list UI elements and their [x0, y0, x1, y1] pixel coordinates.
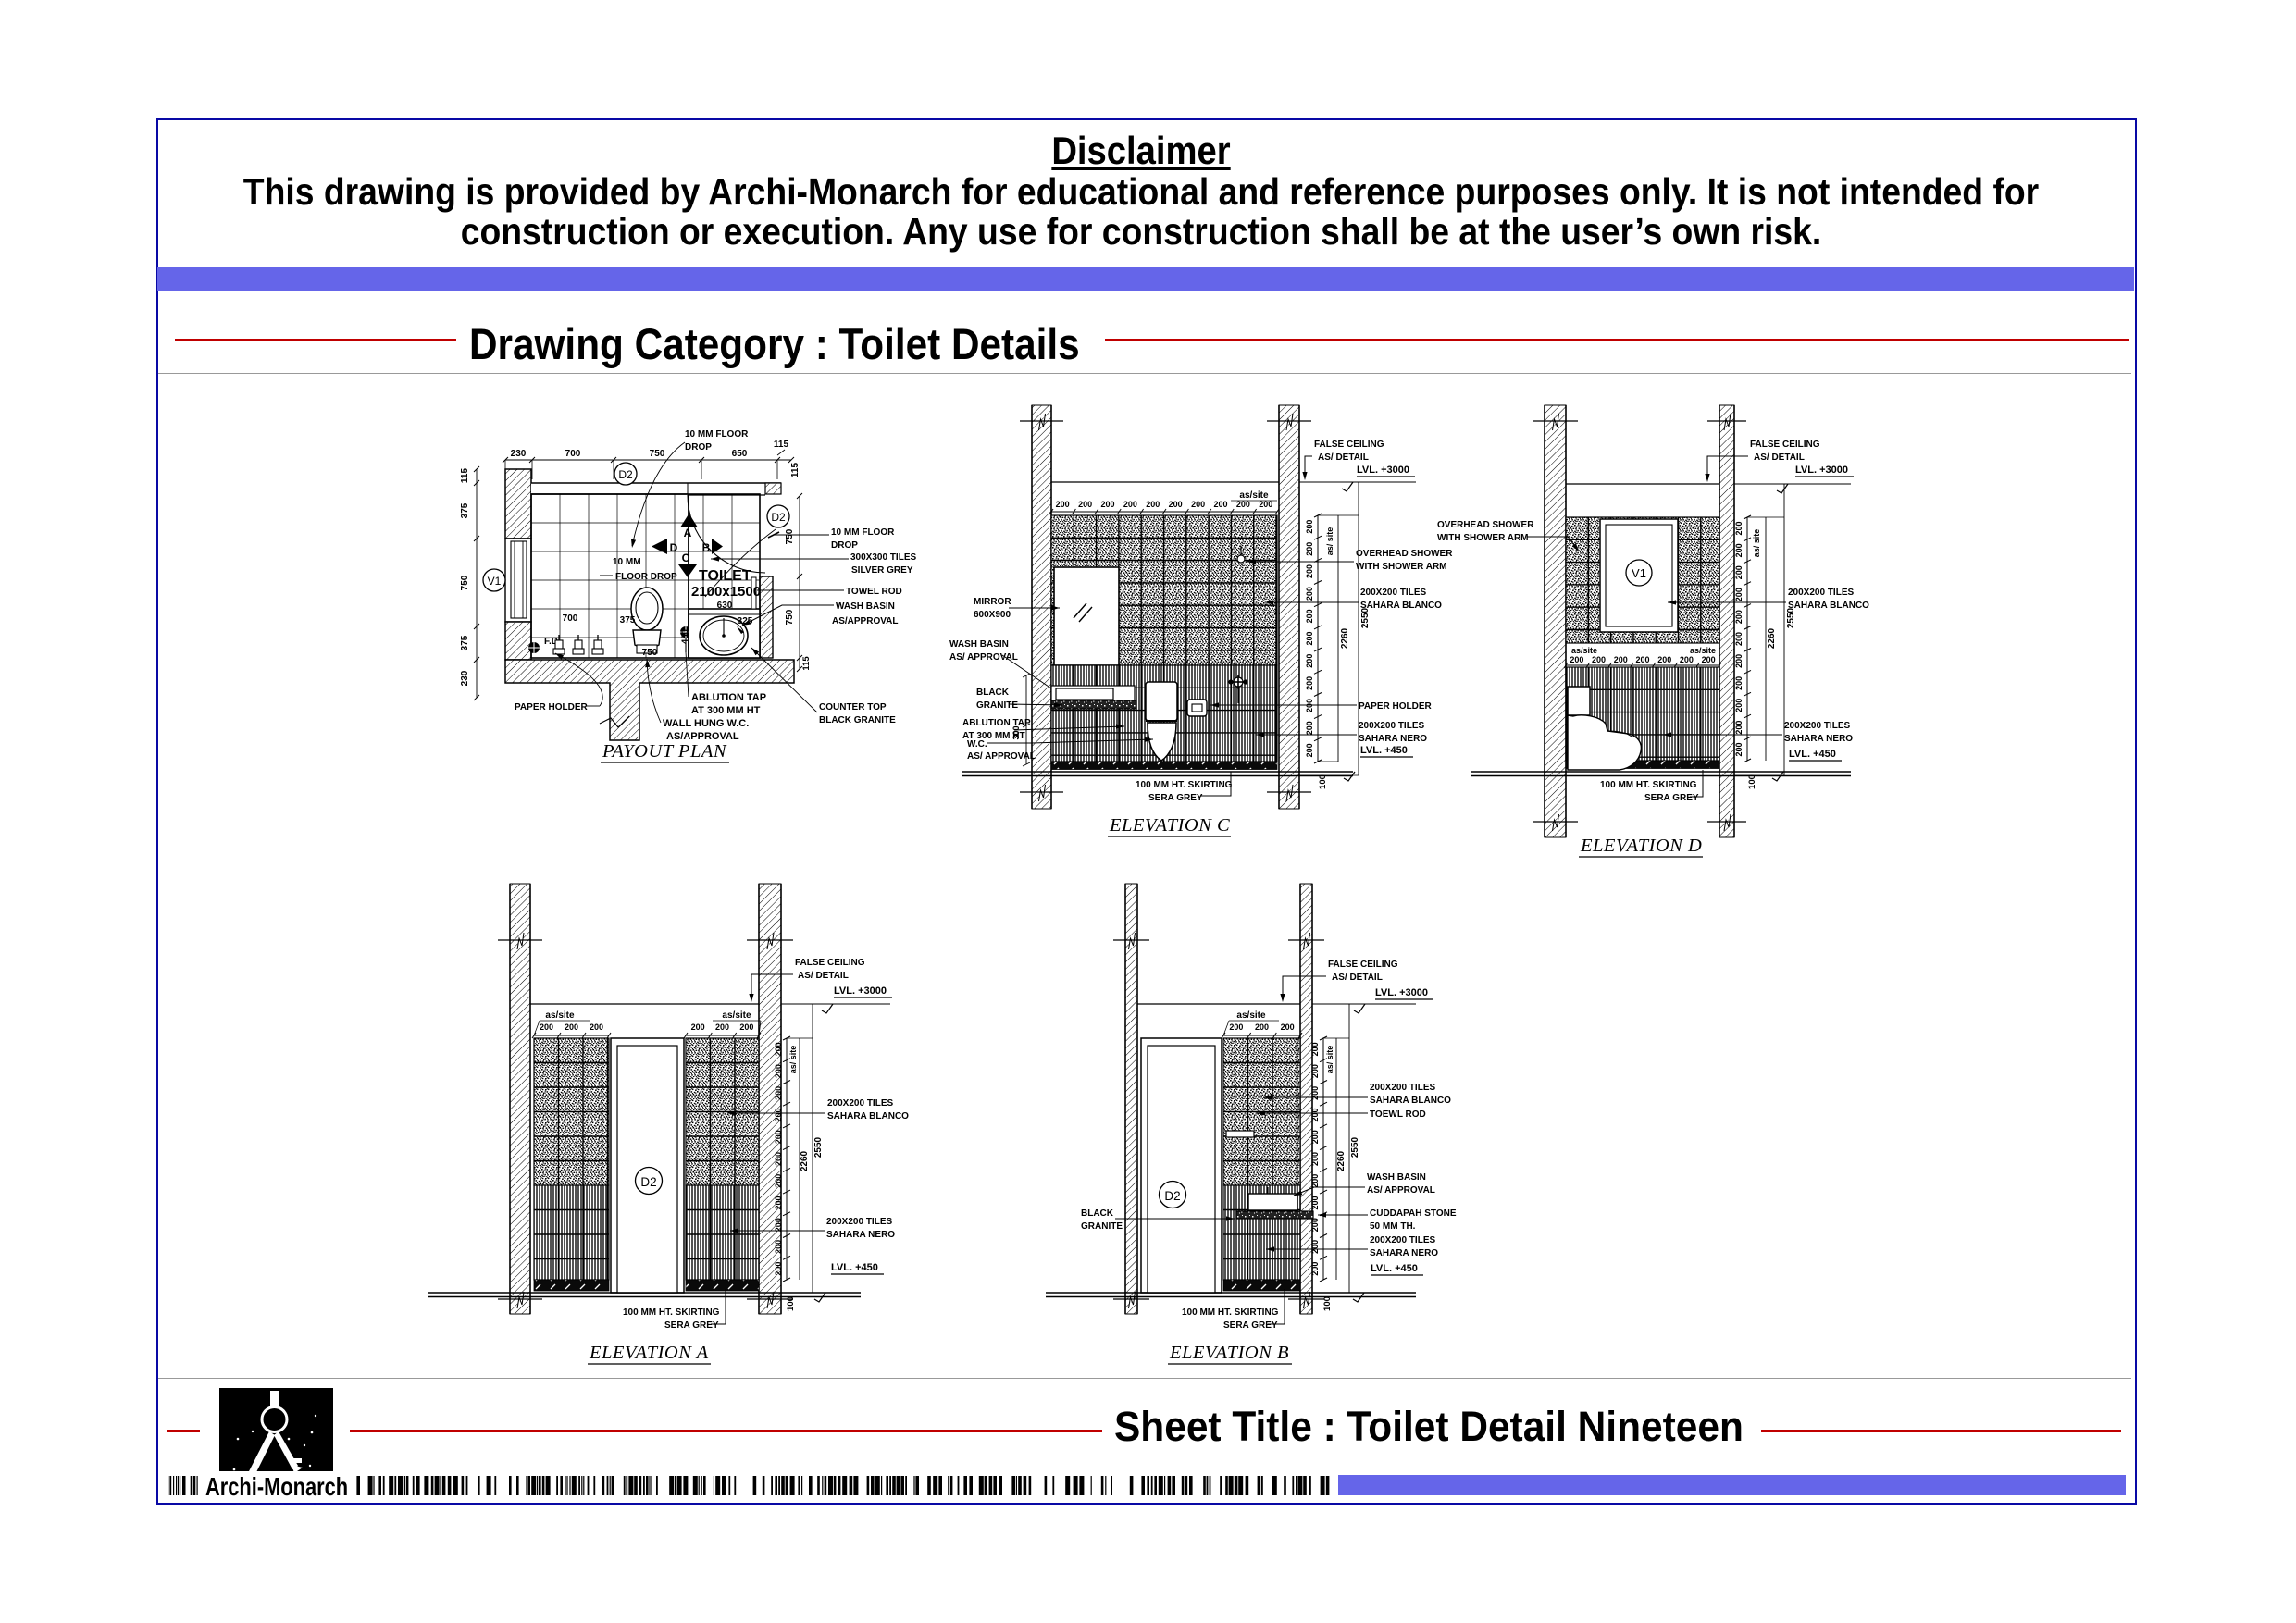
- svg-text:SERA GREY: SERA GREY: [1148, 793, 1203, 803]
- svg-text:100: 100: [1322, 1296, 1333, 1311]
- svg-text:100 MM HT. SKIRTING: 100 MM HT. SKIRTING: [1600, 780, 1697, 790]
- svg-text:600X900: 600X900: [974, 610, 1011, 620]
- svg-text:200: 200: [1592, 655, 1606, 664]
- svg-text:100 MM HT. SKIRTING: 100 MM HT. SKIRTING: [623, 1307, 720, 1318]
- svg-text:2550: 2550: [813, 1136, 824, 1158]
- svg-text:OVERHEAD SHOWER: OVERHEAD SHOWER: [1437, 520, 1534, 530]
- svg-text:200: 200: [1734, 743, 1744, 757]
- svg-text:200: 200: [1191, 500, 1205, 509]
- svg-text:200: 200: [1305, 609, 1314, 623]
- svg-text:200: 200: [1310, 1152, 1320, 1166]
- svg-text:10 MM FLOOR: 10 MM FLOOR: [831, 527, 895, 538]
- svg-text:2100x1500: 2100x1500: [691, 584, 761, 600]
- svg-text:as/site: as/site: [1690, 646, 1716, 655]
- svg-text:700: 700: [565, 449, 581, 459]
- svg-text:200: 200: [1734, 588, 1744, 601]
- svg-text:200: 200: [1570, 655, 1583, 664]
- svg-text:115: 115: [774, 440, 789, 450]
- svg-text:as/site: as/site: [1236, 1010, 1266, 1021]
- svg-text:WASH BASIN: WASH BASIN: [836, 601, 895, 612]
- svg-text:200: 200: [1310, 1042, 1320, 1056]
- svg-text:2260: 2260: [1340, 627, 1350, 649]
- svg-text:WITH SHOWER ARM: WITH SHOWER ARM: [1356, 562, 1447, 572]
- svg-text:W.C.: W.C.: [967, 739, 987, 750]
- svg-text:200: 200: [1657, 655, 1671, 664]
- svg-text:200: 200: [1305, 631, 1314, 645]
- svg-text:SAHARA BLANCO: SAHARA BLANCO: [1788, 601, 1869, 611]
- svg-text:LVL. +450: LVL. +450: [1789, 749, 1836, 760]
- svg-text:375: 375: [460, 502, 470, 518]
- svg-text:200: 200: [774, 1174, 783, 1188]
- svg-text:2550: 2550: [1350, 1136, 1360, 1158]
- svg-text:200: 200: [1310, 1086, 1320, 1100]
- svg-text:2260: 2260: [1336, 1150, 1347, 1171]
- svg-text:D2: D2: [640, 1175, 656, 1189]
- svg-text:630: 630: [717, 601, 733, 611]
- svg-text:FALSE CEILING: FALSE CEILING: [1314, 440, 1384, 450]
- svg-text:10 MM FLOOR: 10 MM FLOOR: [685, 429, 749, 440]
- svg-text:100: 100: [1747, 774, 1757, 789]
- svg-text:D: D: [670, 541, 678, 554]
- svg-text:2260: 2260: [1767, 627, 1777, 649]
- svg-text:200: 200: [565, 1022, 578, 1032]
- svg-text:200: 200: [691, 1022, 705, 1032]
- svg-text:ELEVATION D: ELEVATION D: [1580, 836, 1702, 856]
- svg-text:200: 200: [1680, 655, 1694, 664]
- svg-text:200: 200: [1734, 543, 1744, 557]
- svg-text:FLOOR DROP: FLOOR DROP: [615, 572, 677, 582]
- svg-text:200: 200: [774, 1130, 783, 1144]
- svg-text:C: C: [682, 551, 690, 564]
- svg-text:375: 375: [620, 615, 636, 626]
- svg-text:200: 200: [1259, 500, 1272, 509]
- svg-text:200: 200: [1100, 500, 1114, 509]
- svg-text:200: 200: [1635, 655, 1649, 664]
- svg-text:100: 100: [1318, 774, 1328, 789]
- svg-text:10 MM: 10 MM: [613, 557, 641, 567]
- svg-text:200X200 TILES: 200X200 TILES: [1370, 1235, 1435, 1245]
- svg-text:200: 200: [1734, 632, 1744, 646]
- svg-text:BLACK: BLACK: [1081, 1208, 1114, 1219]
- svg-text:200: 200: [1305, 654, 1314, 668]
- svg-text:200: 200: [1734, 521, 1744, 535]
- svg-text:PAPER HOLDER: PAPER HOLDER: [515, 702, 588, 712]
- svg-text:AS/ DETAIL: AS/ DETAIL: [1332, 973, 1383, 983]
- svg-text:AT 300 MM HT: AT 300 MM HT: [691, 705, 761, 716]
- svg-text:V1: V1: [1632, 566, 1646, 580]
- svg-text:SERA GREY: SERA GREY: [1644, 793, 1699, 803]
- svg-text:100: 100: [786, 1296, 796, 1311]
- svg-text:SILVER GREY: SILVER GREY: [851, 565, 913, 576]
- svg-text:SERA GREY: SERA GREY: [664, 1320, 719, 1331]
- svg-text:as/ site: as/ site: [1752, 529, 1761, 558]
- svg-text:200: 200: [1056, 500, 1070, 509]
- svg-text:200: 200: [774, 1240, 783, 1254]
- svg-text:PAYOUT PLAN: PAYOUT PLAN: [602, 741, 727, 762]
- svg-text:200: 200: [1310, 1218, 1320, 1232]
- svg-text:WITH SHOWER ARM: WITH SHOWER ARM: [1437, 533, 1529, 543]
- svg-text:AS/ DETAIL: AS/ DETAIL: [1754, 452, 1805, 463]
- svg-text:AS/ DETAIL: AS/ DETAIL: [798, 971, 849, 981]
- svg-text:BLACK: BLACK: [976, 688, 1010, 698]
- svg-text:200: 200: [1310, 1262, 1320, 1276]
- svg-text:2260: 2260: [800, 1150, 810, 1171]
- svg-text:SAHARA BLANCO: SAHARA BLANCO: [1360, 601, 1442, 611]
- svg-text:200: 200: [774, 1152, 783, 1166]
- svg-text:200X200 TILES: 200X200 TILES: [826, 1217, 892, 1227]
- svg-text:200: 200: [1614, 655, 1628, 664]
- svg-text:750: 750: [785, 609, 795, 625]
- svg-text:200: 200: [1078, 500, 1092, 509]
- svg-text:MIRROR: MIRROR: [974, 597, 1011, 607]
- svg-text:200: 200: [1229, 1022, 1243, 1032]
- svg-text:200: 200: [1123, 500, 1137, 509]
- svg-text:D2: D2: [771, 511, 786, 524]
- svg-text:200: 200: [1213, 500, 1227, 509]
- svg-text:DROP: DROP: [831, 540, 858, 551]
- svg-text:300: 300: [1011, 725, 1021, 739]
- svg-text:230: 230: [511, 449, 527, 459]
- svg-text:100 MM HT. SKIRTING: 100 MM HT. SKIRTING: [1136, 780, 1233, 790]
- svg-text:230: 230: [460, 670, 470, 686]
- svg-text:CUDDAPAH STONE: CUDDAPAH STONE: [1370, 1208, 1457, 1219]
- svg-text:200: 200: [1169, 500, 1183, 509]
- svg-text:200: 200: [715, 1022, 729, 1032]
- svg-text:375: 375: [460, 635, 470, 650]
- svg-text:200: 200: [774, 1196, 783, 1209]
- svg-text:AS/ APPROVAL: AS/ APPROVAL: [967, 751, 1036, 762]
- svg-text:WASH BASIN: WASH BASIN: [1367, 1172, 1426, 1183]
- svg-text:200: 200: [1255, 1022, 1269, 1032]
- svg-text:ELEVATION B: ELEVATION B: [1169, 1343, 1289, 1363]
- svg-text:TOWEL ROD: TOWEL ROD: [846, 587, 902, 597]
- svg-text:GRANITE: GRANITE: [976, 700, 1018, 711]
- svg-text:115: 115: [460, 467, 470, 483]
- svg-text:SAHARA NERO: SAHARA NERO: [1784, 734, 1853, 744]
- svg-text:as/site: as/site: [1571, 646, 1597, 655]
- svg-text:700: 700: [563, 613, 578, 624]
- svg-text:TOEWL ROD: TOEWL ROD: [1370, 1109, 1426, 1120]
- svg-text:200: 200: [1310, 1064, 1320, 1078]
- svg-text:200: 200: [1305, 542, 1314, 556]
- svg-text:200: 200: [1734, 676, 1744, 690]
- svg-text:200: 200: [590, 1022, 603, 1032]
- svg-text:WASH BASIN: WASH BASIN: [949, 639, 1009, 650]
- svg-text:200: 200: [1734, 699, 1744, 712]
- svg-text:115: 115: [801, 656, 812, 671]
- svg-text:200: 200: [774, 1042, 783, 1056]
- svg-text:SAHARA NERO: SAHARA NERO: [1359, 734, 1427, 744]
- svg-text:LVL. +3000: LVL. +3000: [1375, 987, 1428, 998]
- svg-text:B: B: [702, 541, 711, 554]
- svg-text:200: 200: [1305, 699, 1314, 712]
- svg-text:as/site: as/site: [722, 1010, 751, 1021]
- svg-text:200: 200: [1310, 1174, 1320, 1188]
- svg-text:200: 200: [1310, 1196, 1320, 1209]
- svg-text:A: A: [684, 527, 692, 539]
- svg-text:TOILET: TOILET: [699, 568, 751, 584]
- svg-text:200: 200: [774, 1086, 783, 1100]
- svg-text:V1: V1: [488, 575, 502, 588]
- svg-text:450: 450: [680, 629, 690, 644]
- svg-text:750: 750: [460, 575, 470, 590]
- svg-text:COUNTER TOP: COUNTER TOP: [819, 702, 887, 712]
- svg-text:200: 200: [1236, 500, 1250, 509]
- svg-text:750: 750: [785, 528, 795, 544]
- svg-text:200X200 TILES: 200X200 TILES: [827, 1098, 893, 1109]
- svg-text:SERA GREY: SERA GREY: [1223, 1320, 1278, 1331]
- svg-text:LVL. +450: LVL. +450: [1371, 1263, 1418, 1274]
- svg-text:200X200 TILES: 200X200 TILES: [1359, 721, 1424, 731]
- svg-text:as/ site: as/ site: [788, 1046, 798, 1074]
- svg-text:200: 200: [1146, 500, 1160, 509]
- svg-text:200: 200: [1305, 676, 1314, 690]
- svg-text:300X300 TILES: 300X300 TILES: [850, 552, 916, 563]
- svg-text:200: 200: [1734, 610, 1744, 624]
- svg-text:200: 200: [1734, 565, 1744, 579]
- svg-text:200: 200: [540, 1022, 553, 1032]
- svg-text:DROP: DROP: [685, 442, 712, 452]
- svg-text:PAPER HOLDER: PAPER HOLDER: [1359, 701, 1432, 712]
- svg-text:200: 200: [1310, 1130, 1320, 1144]
- svg-text:LVL. +450: LVL. +450: [831, 1262, 878, 1273]
- svg-text:200: 200: [1305, 721, 1314, 735]
- svg-text:200: 200: [1734, 654, 1744, 668]
- svg-text:SAHARA BLANCO: SAHARA BLANCO: [1370, 1096, 1451, 1106]
- svg-text:GRANITE: GRANITE: [1081, 1221, 1123, 1232]
- svg-text:100 MM HT. SKIRTING: 100 MM HT. SKIRTING: [1182, 1307, 1279, 1318]
- svg-text:200X200 TILES: 200X200 TILES: [1370, 1083, 1435, 1093]
- svg-text:BLACK GRANITE: BLACK GRANITE: [819, 715, 896, 725]
- svg-text:200: 200: [1310, 1109, 1320, 1122]
- svg-text:200X200 TILES: 200X200 TILES: [1360, 588, 1426, 598]
- svg-text:AS/APPROVAL: AS/APPROVAL: [832, 616, 899, 626]
- svg-text:WALL HUNG W.C.: WALL HUNG W.C.: [663, 718, 749, 729]
- svg-text:650: 650: [732, 449, 748, 459]
- svg-text:200: 200: [1305, 743, 1314, 757]
- svg-text:200: 200: [1305, 587, 1314, 601]
- svg-text:LVL. +3000: LVL. +3000: [834, 985, 887, 997]
- svg-text:200: 200: [1305, 520, 1314, 534]
- svg-text:200: 200: [1281, 1022, 1295, 1032]
- svg-text:200: 200: [774, 1262, 783, 1276]
- svg-text:200: 200: [1310, 1240, 1320, 1254]
- svg-text:200: 200: [774, 1064, 783, 1078]
- svg-text:AS/ APPROVAL: AS/ APPROVAL: [949, 652, 1018, 663]
- svg-text:as/site: as/site: [545, 1010, 575, 1021]
- svg-text:D2: D2: [618, 468, 633, 481]
- svg-text:200: 200: [1702, 655, 1716, 664]
- svg-text:FALSE CEILING: FALSE CEILING: [1750, 440, 1820, 450]
- svg-text:200: 200: [774, 1218, 783, 1232]
- svg-text:115: 115: [790, 462, 800, 477]
- svg-text:200: 200: [1305, 564, 1314, 578]
- svg-text:ABLUTION TAP: ABLUTION TAP: [691, 692, 766, 703]
- svg-text:750: 750: [650, 449, 665, 459]
- svg-text:750: 750: [642, 648, 658, 658]
- svg-text:SAHARA BLANCO: SAHARA BLANCO: [827, 1111, 909, 1121]
- svg-text:FALSE CEILING: FALSE CEILING: [1328, 960, 1398, 970]
- svg-text:LVL. +450: LVL. +450: [1360, 745, 1408, 756]
- svg-text:SAHARA NERO: SAHARA NERO: [1370, 1248, 1438, 1258]
- svg-text:AS/ DETAIL: AS/ DETAIL: [1318, 452, 1369, 463]
- svg-text:ELEVATION A: ELEVATION A: [589, 1343, 709, 1363]
- svg-text:LVL. +3000: LVL. +3000: [1795, 465, 1848, 476]
- svg-text:FALSE CEILING: FALSE CEILING: [795, 958, 865, 968]
- svg-text:as/ site: as/ site: [1325, 1046, 1334, 1074]
- svg-text:OVERHEAD SHOWER: OVERHEAD SHOWER: [1356, 549, 1453, 559]
- svg-text:LVL. +3000: LVL. +3000: [1357, 465, 1409, 476]
- svg-text:200X200 TILES: 200X200 TILES: [1784, 721, 1850, 731]
- svg-text:ELEVATION C: ELEVATION C: [1109, 815, 1230, 836]
- svg-text:50 MM TH.: 50 MM TH.: [1370, 1221, 1416, 1232]
- svg-text:AS/ APPROVAL: AS/ APPROVAL: [1367, 1185, 1435, 1196]
- svg-text:as/ site: as/ site: [1325, 527, 1334, 556]
- svg-text:200: 200: [774, 1109, 783, 1122]
- svg-text:200: 200: [1734, 721, 1744, 735]
- svg-text:SAHARA NERO: SAHARA NERO: [826, 1230, 895, 1240]
- svg-text:D2: D2: [1164, 1189, 1180, 1203]
- svg-text:200X200 TILES: 200X200 TILES: [1788, 588, 1854, 598]
- svg-text:200: 200: [739, 1022, 753, 1032]
